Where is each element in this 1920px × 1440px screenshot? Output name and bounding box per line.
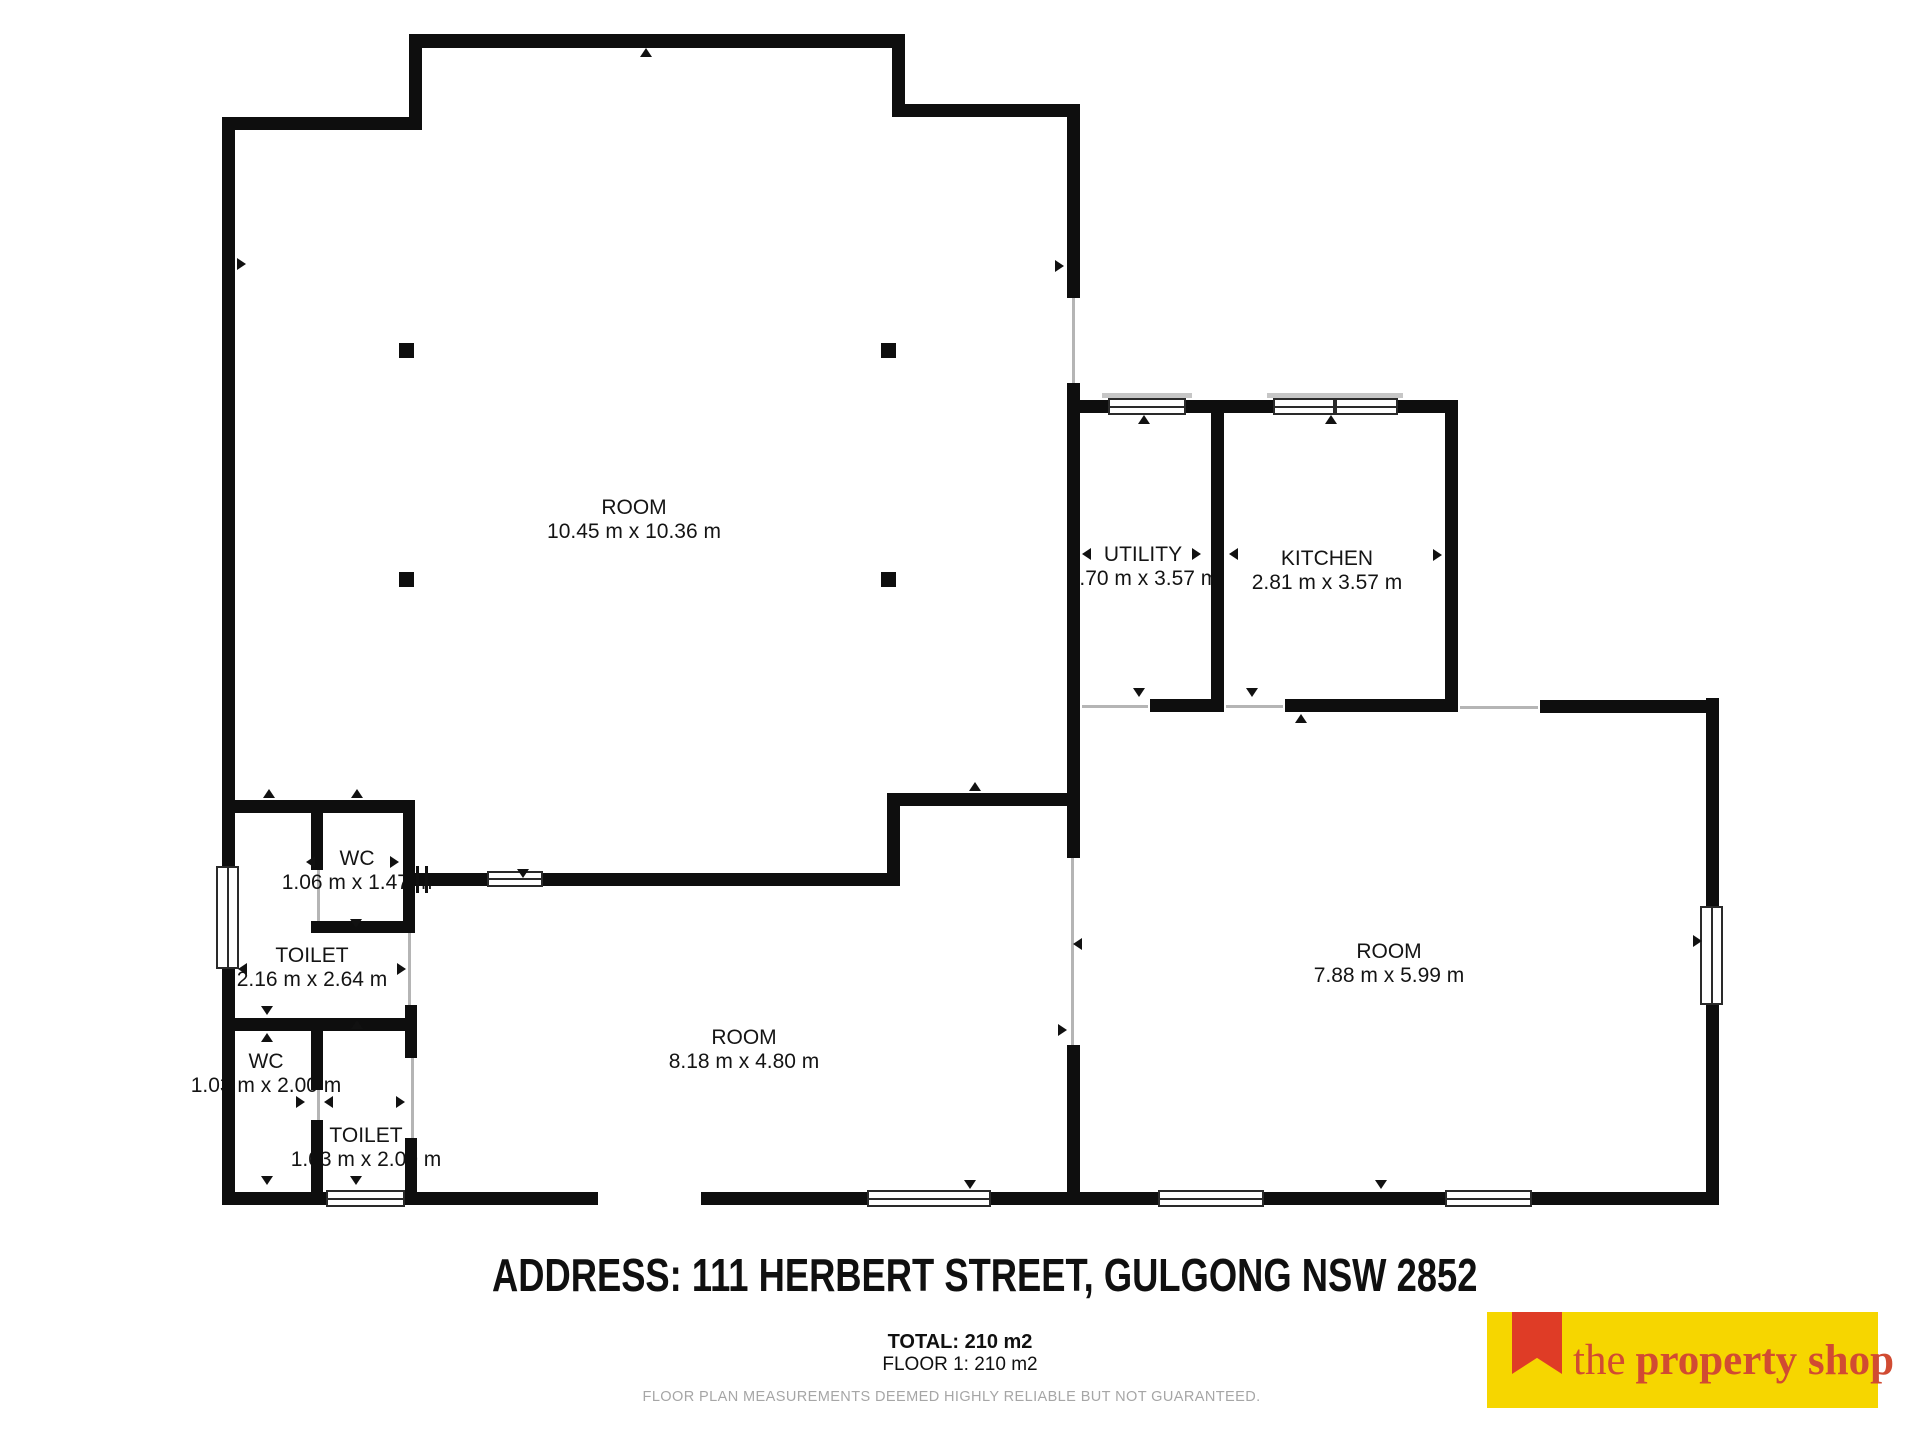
door-opening-line [1072, 298, 1075, 385]
window [867, 1190, 991, 1207]
door-arrow [1058, 1024, 1067, 1036]
door-arrow [261, 1176, 273, 1185]
column-post [881, 343, 896, 358]
door-arrow [350, 1176, 362, 1185]
door-arrow [324, 1096, 333, 1108]
disclaimer-text: FLOOR PLAN MEASUREMENTS DEEMED HIGHLY RE… [643, 1388, 1261, 1405]
door-opening-line [1460, 706, 1538, 709]
door-arrow [261, 1006, 273, 1015]
window [487, 871, 543, 887]
address-text: ADDRESS: 111 HERBERT STREET, GULGONG NSW… [492, 1252, 1477, 1298]
door-arrow [1133, 688, 1145, 697]
room-label-toilet-upper: TOILET 2.16 m x 2.64 m [237, 944, 388, 993]
door-arrow [1082, 548, 1091, 560]
door-arrow [1229, 548, 1238, 560]
agency-logo-text: theproperty shop [1573, 1312, 1894, 1408]
door-arrow [351, 1020, 363, 1029]
door-arrow [517, 869, 529, 878]
room-dims: 7.88 m x 5.99 m [1314, 964, 1465, 988]
door-arrow [390, 856, 399, 868]
wall [222, 117, 422, 130]
wall [1211, 400, 1224, 700]
door-arrow [237, 258, 246, 270]
door-arrow [1073, 938, 1082, 950]
door-arrow [350, 919, 362, 928]
room-name: TOILET [237, 944, 388, 968]
wall [1540, 700, 1719, 713]
room-dims: 2.81 m x 3.57 m [1252, 571, 1403, 595]
door-hatch [416, 866, 419, 893]
bookmark-ribbon-icon [1512, 1312, 1562, 1374]
wall [1285, 699, 1458, 712]
wall [1445, 400, 1458, 712]
door-arrow [351, 789, 363, 798]
floor-plan-page: ROOM 10.45 m x 10.36 m UTILITY 1.70 m x … [0, 0, 1920, 1440]
room-name: ROOM [547, 496, 721, 520]
window [1158, 1190, 1264, 1207]
wall [311, 921, 415, 933]
room-label-main: ROOM 10.45 m x 10.36 m [547, 496, 721, 545]
window [1700, 906, 1723, 1005]
room-dims: 1.70 m x 3.57 m [1068, 567, 1219, 591]
wall [905, 104, 1071, 117]
door-opening [598, 1190, 701, 1207]
door-arrow [1295, 714, 1307, 723]
room-label-room-bottom: ROOM 8.18 m x 4.80 m [669, 1026, 820, 1075]
column-post [399, 343, 414, 358]
door-opening-line [1226, 705, 1283, 708]
column-post [399, 572, 414, 587]
column-post [881, 572, 896, 587]
door-arrow [1693, 935, 1702, 947]
wall [311, 1031, 323, 1090]
door-opening-line [1082, 705, 1148, 708]
door-arrow [238, 963, 247, 975]
wall [1067, 1045, 1080, 1193]
door-arrow [1138, 415, 1150, 424]
room-label-room-right: ROOM 7.88 m x 5.99 m [1314, 940, 1465, 989]
wall [403, 800, 415, 933]
window [1108, 398, 1186, 415]
wall [887, 793, 1080, 806]
agency-logo: theproperty shop [1487, 1312, 1878, 1408]
window [216, 866, 239, 969]
wall [235, 1018, 415, 1031]
logo-the: the [1573, 1336, 1626, 1385]
window-mullion [1333, 399, 1337, 414]
wall [1150, 699, 1224, 712]
room-name: ROOM [669, 1026, 820, 1050]
door-arrow [296, 1096, 305, 1108]
wall [311, 1120, 323, 1193]
window [1445, 1190, 1532, 1207]
room-name: KITCHEN [1252, 547, 1403, 571]
wall [1067, 383, 1080, 858]
door-arrow [1375, 1180, 1387, 1189]
door-arrow [263, 789, 275, 798]
door-arrow [964, 1180, 976, 1189]
room-dims: 8.18 m x 4.80 m [669, 1050, 820, 1074]
wall [405, 1138, 417, 1193]
wall [405, 1005, 417, 1058]
wall [409, 34, 422, 130]
wall [222, 117, 235, 1205]
wall [892, 34, 905, 117]
room-dims: 10.45 m x 10.36 m [547, 520, 721, 544]
door-hatch [425, 866, 428, 893]
wall [235, 800, 415, 813]
room-label-kitchen: KITCHEN 2.81 m x 3.57 m [1252, 547, 1403, 596]
room-dims: 2.16 m x 2.64 m [237, 968, 388, 992]
door-arrow [1192, 548, 1201, 560]
door-arrow [1246, 688, 1258, 697]
door-arrow [396, 1096, 405, 1108]
door-arrow [1433, 549, 1442, 561]
door-arrow [969, 782, 981, 791]
wall [1067, 104, 1080, 298]
door-arrow [1325, 415, 1337, 424]
door-arrow [306, 856, 315, 868]
door-arrow [261, 1033, 273, 1042]
address-line: ADDRESS: 111 HERBERT STREET, GULGONG NSW… [0, 1252, 1920, 1298]
room-name: ROOM [1314, 940, 1465, 964]
window [326, 1190, 405, 1207]
logo-name: property shop [1636, 1336, 1894, 1385]
door-arrow [1055, 260, 1064, 272]
door-arrow [640, 48, 652, 57]
door-opening-line [1071, 858, 1074, 1046]
wall [409, 34, 905, 48]
door-arrow [397, 963, 406, 975]
wall [403, 873, 900, 886]
